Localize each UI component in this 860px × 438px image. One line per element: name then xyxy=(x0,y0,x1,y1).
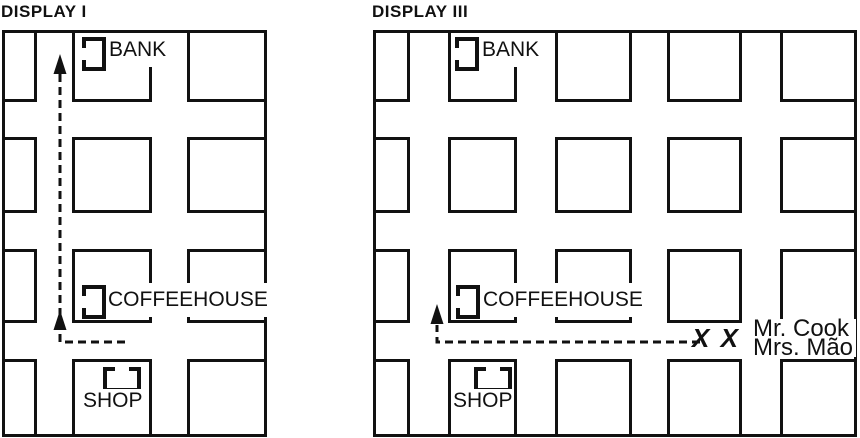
route-arrow-up-icon xyxy=(431,304,444,324)
bank-label: BANK xyxy=(482,33,539,67)
city-block xyxy=(667,137,742,213)
city-block xyxy=(373,30,410,102)
route-arrow-up-icon xyxy=(54,54,67,74)
city-block xyxy=(2,30,37,102)
city-block xyxy=(555,30,632,102)
coffeehouse-building-icon xyxy=(82,285,106,319)
bank-building-icon xyxy=(82,37,106,71)
display-1-map: BANK COFFEEHOUSE SHOP xyxy=(2,30,267,437)
city-block xyxy=(187,359,267,437)
route-arrow-up-icon xyxy=(54,310,67,330)
city-block xyxy=(780,249,857,323)
city-block xyxy=(555,137,632,213)
city-block xyxy=(667,249,742,323)
bank-building-icon xyxy=(455,37,479,71)
people-labels: Mr. Cook Mrs. Mão xyxy=(750,319,856,357)
display-3-title: DISPLAY III xyxy=(372,2,468,22)
coffeehouse-label: COFFEEHOUSE xyxy=(483,283,643,317)
city-block xyxy=(373,359,410,437)
city-block xyxy=(2,359,37,437)
route-dashed-line xyxy=(437,325,700,342)
city-block xyxy=(187,137,267,213)
city-block xyxy=(2,249,37,323)
figure-route-displays: DISPLAY I DISPLAY III BANK COFFEEHOUS xyxy=(0,0,860,438)
city-block xyxy=(72,137,152,213)
city-block xyxy=(667,359,742,437)
display-3-map: BANK COFFEEHOUSE SHOP X X Mr. Cook Mrs. … xyxy=(373,30,857,437)
coffeehouse-building-icon xyxy=(456,285,480,319)
city-block xyxy=(667,30,742,102)
shop-label: SHOP xyxy=(83,389,143,413)
city-block xyxy=(780,137,857,213)
city-block xyxy=(373,137,410,213)
city-block xyxy=(555,359,632,437)
shop-label: SHOP xyxy=(453,389,513,413)
city-block xyxy=(780,359,857,437)
display-1-title: DISPLAY I xyxy=(1,2,87,22)
city-block xyxy=(373,249,410,323)
meeting-point-x-marks: X X xyxy=(692,323,740,354)
city-block xyxy=(780,30,857,102)
bank-label: BANK xyxy=(109,33,166,67)
city-block xyxy=(187,30,267,102)
city-block xyxy=(2,137,37,213)
coffeehouse-label: COFFEEHOUSE xyxy=(108,283,268,317)
person-label-mrs-mao: Mrs. Mão xyxy=(753,338,853,357)
city-block xyxy=(448,137,517,213)
